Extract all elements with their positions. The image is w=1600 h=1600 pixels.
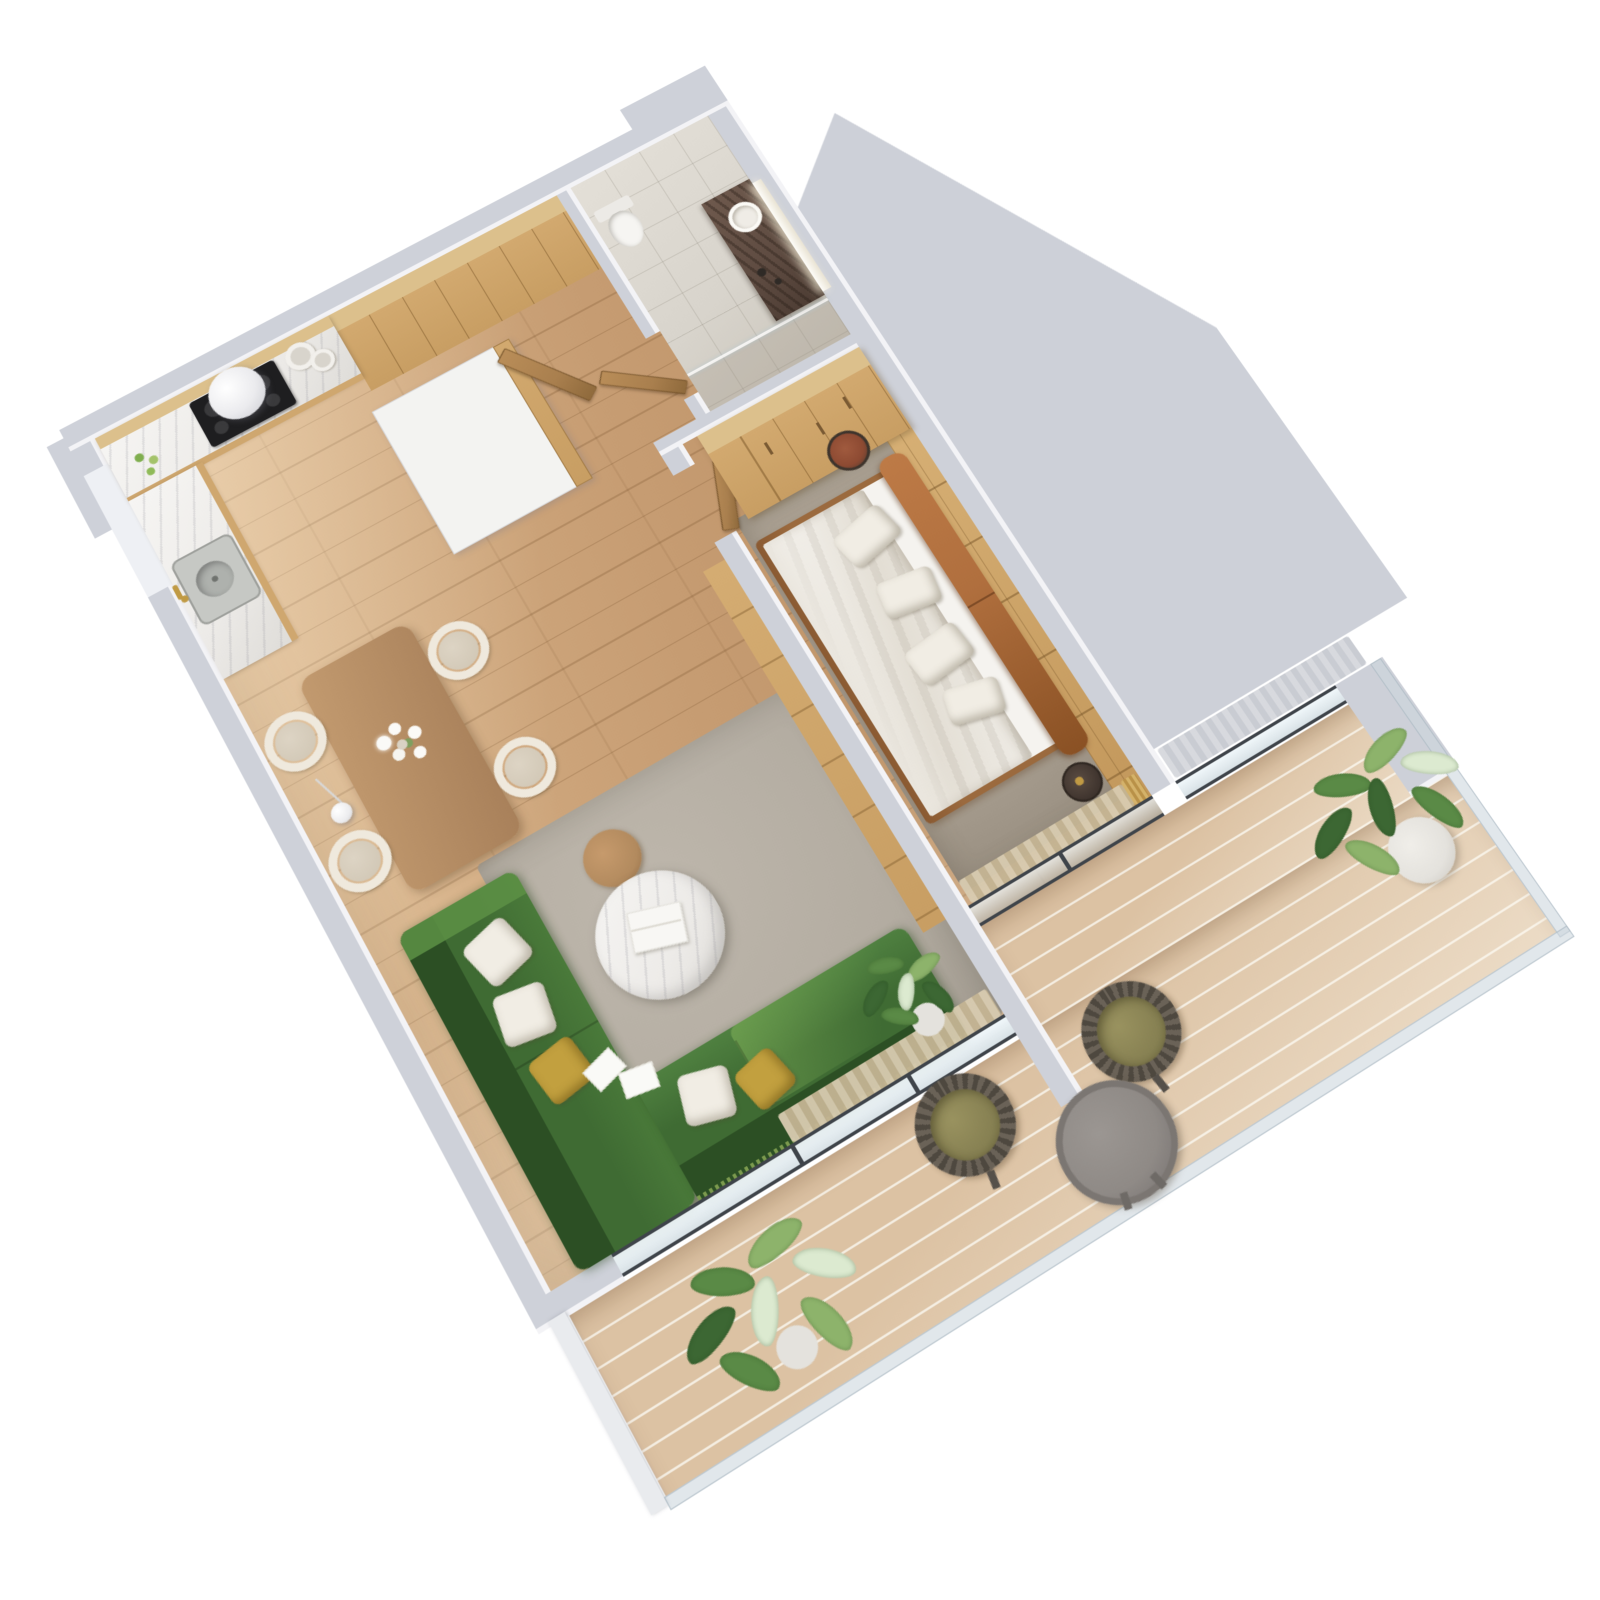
chair-cushion [917, 1076, 1013, 1174]
apartment-plan [18, 0, 1600, 1600]
chair-cushion [1084, 984, 1180, 1080]
glass-mullion [1059, 853, 1072, 870]
plant-leaf [1362, 776, 1401, 839]
flower [386, 720, 403, 737]
plant-leaf [791, 1243, 859, 1282]
flower [411, 743, 428, 760]
flower [374, 733, 394, 753]
floorplan-3d-render [0, 0, 1600, 1600]
burner [264, 391, 283, 409]
plant-leaf [1401, 749, 1459, 776]
plant-leaf [897, 972, 916, 1011]
glass-mullion [791, 1146, 804, 1164]
plant-leaf [865, 954, 905, 977]
burner [212, 418, 231, 436]
plant-leaf [1312, 771, 1373, 800]
plant-leaf [751, 1276, 779, 1347]
plant-leaf [691, 1267, 756, 1297]
